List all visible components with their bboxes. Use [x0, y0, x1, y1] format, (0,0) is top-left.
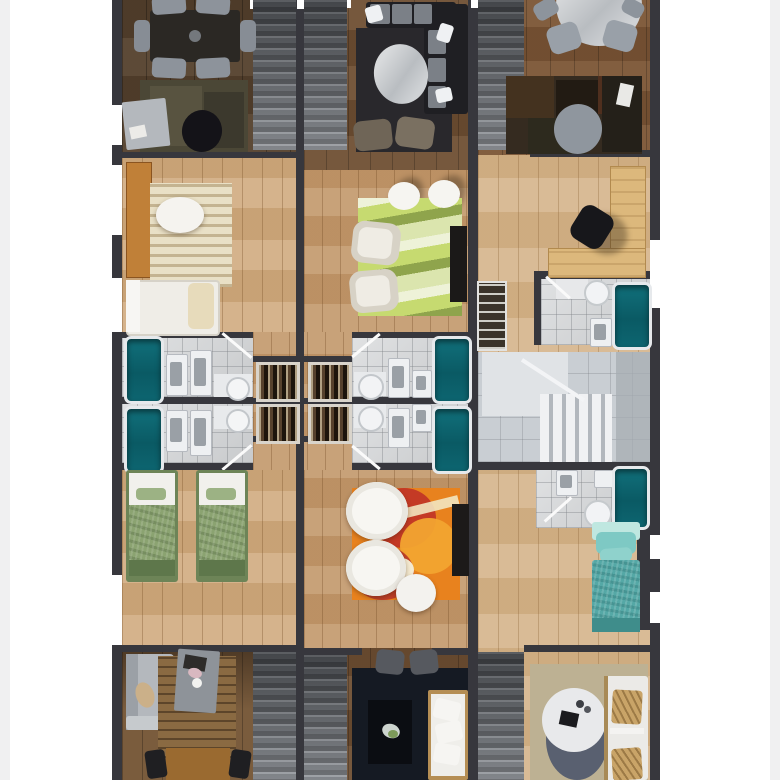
- stair-left-top: [253, 0, 296, 150]
- sink-round-left-a: [226, 377, 250, 401]
- stairwell-steps: [540, 394, 612, 462]
- dining-chair-bottom-l: [144, 749, 168, 780]
- bathtub-center-b: [432, 406, 472, 474]
- bath2-toilet: [594, 470, 614, 488]
- toilet-center-a1-lid: [392, 366, 404, 388]
- sofa-white-trim: [604, 676, 608, 780]
- sofa-cushion-tan-1: [611, 689, 643, 725]
- bathtub-right-1: [612, 282, 652, 350]
- armchair-2-cushion: [355, 275, 391, 308]
- bed-single-fold: [126, 280, 140, 332]
- bed-twin-1-fold: [129, 560, 175, 576]
- stair-center-bottom: [304, 655, 347, 780]
- flowers-green: [388, 730, 398, 738]
- chair-media-1: [375, 649, 405, 676]
- dining-chair-1: [151, 0, 186, 15]
- stair-center-top: [304, 0, 347, 150]
- bed-single-pillow: [188, 283, 214, 329]
- bed-twin-2-blanket: [199, 505, 245, 567]
- ottoman-1: [353, 118, 394, 152]
- pouf-white-left: [156, 197, 204, 233]
- window-left-1: [112, 165, 122, 235]
- bathtub-left-a: [124, 336, 164, 404]
- sink-round-center-b: [358, 406, 384, 432]
- bathtub-left-b: [124, 406, 164, 474]
- sink-round-center-a: [358, 374, 384, 400]
- sofa-cushion-tan-2: [611, 747, 643, 780]
- bathtub-center-a: [432, 336, 472, 404]
- fixture-left-a2-basin: [194, 358, 206, 386]
- bed-twin-2-pillow: [206, 488, 236, 500]
- bed-teal-fold: [592, 618, 640, 632]
- bathtub-right-2: [612, 466, 650, 530]
- fixture-left-a1-basin: [170, 362, 182, 386]
- stool-white-1: [388, 182, 420, 210]
- dining-table-bottom-left: [166, 748, 230, 780]
- toilet-center-b1-lid: [392, 416, 404, 438]
- closet-2: [308, 362, 352, 402]
- stair-right-bottom: [478, 652, 524, 780]
- sink-round-left-b: [226, 409, 250, 433]
- dining-chair-5: [134, 20, 150, 52]
- armchair-1-cushion: [357, 226, 394, 259]
- dining-chair-4: [195, 57, 230, 79]
- wall-center-bottom-right: [432, 648, 468, 655]
- dining-chair-2: [195, 0, 230, 15]
- window-left-2: [112, 278, 122, 332]
- bed-twin-1-blanket: [129, 505, 175, 567]
- sofa-white-seatline: [610, 728, 644, 734]
- daybed-pillow-3: [432, 742, 461, 766]
- dining-chair-3: [151, 57, 186, 79]
- fixture-left-b2-basin: [194, 418, 206, 446]
- wall-right-bottom: [524, 645, 650, 652]
- dining-chair-6: [240, 20, 256, 52]
- coffee-table-cup: [192, 678, 202, 688]
- window-left-3: [112, 575, 122, 645]
- bath1-sink-round: [584, 280, 610, 306]
- wall-right-bath1-left: [534, 279, 541, 345]
- pouf-big-1: [346, 482, 408, 540]
- bed-twin-2-fold: [199, 560, 245, 576]
- bed-twin-1-pillow: [136, 488, 166, 500]
- fixture-left-b1-basin: [170, 418, 182, 442]
- closet-4: [308, 404, 352, 444]
- bath2-sink-basin: [560, 475, 572, 488]
- toilet-center-b2-lid: [416, 410, 426, 424]
- closet-1: [256, 362, 300, 402]
- toilet-center-a2-lid: [416, 376, 426, 390]
- dining-chair-bottom-r: [228, 749, 252, 780]
- sofa-cushion-5: [428, 58, 446, 82]
- dining-table-knob: [189, 30, 201, 42]
- page-edge-left: [0, 0, 10, 780]
- stairwell-side-shade: [616, 352, 650, 462]
- ladder-shelf: [477, 281, 507, 351]
- table-item-dot-2: [584, 706, 591, 713]
- sofa-cushion-2: [392, 4, 412, 24]
- tv-console-center-2: [452, 504, 469, 576]
- chair-media-2: [409, 649, 439, 676]
- desk-gray-left: [122, 98, 171, 150]
- window-right-3: [650, 592, 660, 623]
- tv-console-center-1: [450, 226, 467, 302]
- wardrobe-left: [126, 162, 152, 278]
- bath1-toilet-lid: [594, 324, 606, 340]
- table-item-dot-1: [576, 700, 584, 708]
- window-left-0: [112, 105, 122, 145]
- page-edge-right: [770, 0, 780, 780]
- sofa-cushion-3: [414, 4, 432, 24]
- floorplan-canvas: [0, 0, 780, 780]
- rug-patch-1: [506, 76, 554, 118]
- wall-center-bottom-left: [304, 648, 362, 655]
- closet-3: [256, 404, 300, 444]
- ottoman-2: [394, 116, 436, 151]
- stool-white-2: [428, 180, 460, 208]
- window-right-2: [650, 535, 660, 559]
- stair-left-bottom: [253, 652, 296, 780]
- pouf-small: [396, 574, 436, 612]
- desk-l-horizontal: [548, 248, 646, 278]
